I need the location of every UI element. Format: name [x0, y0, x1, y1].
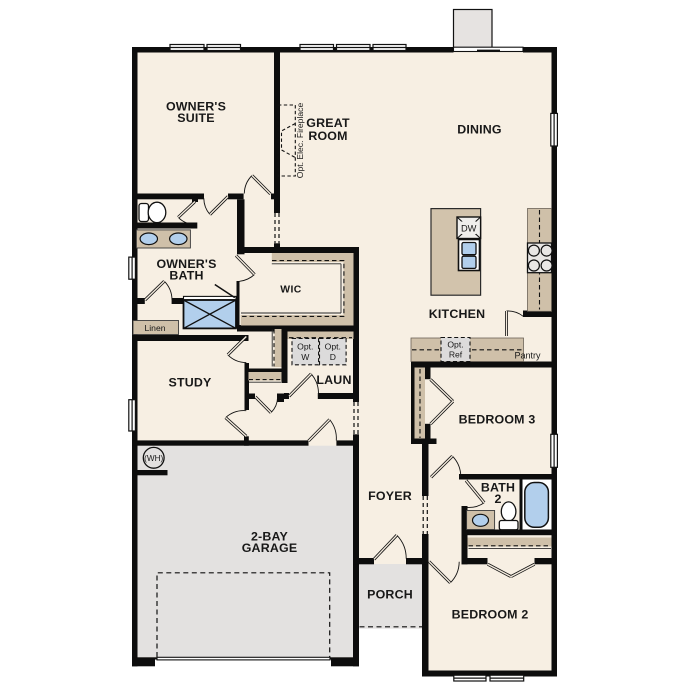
svg-text:WIC: WIC: [280, 284, 301, 295]
svg-text:BEDROOM 3: BEDROOM 3: [459, 413, 536, 427]
svg-text:Opt.: Opt.: [297, 342, 313, 352]
svg-text:W: W: [301, 352, 310, 362]
svg-text:BATH: BATH: [169, 269, 203, 283]
svg-text:GREAT: GREAT: [306, 116, 350, 130]
svg-text:D: D: [330, 352, 336, 362]
svg-text:2: 2: [494, 492, 501, 506]
svg-text:Pantry: Pantry: [514, 351, 541, 361]
svg-text:PORCH: PORCH: [367, 588, 413, 602]
svg-text:BEDROOM 2: BEDROOM 2: [452, 608, 529, 622]
svg-text:GARAGE: GARAGE: [242, 541, 298, 555]
svg-text:Opt.: Opt.: [325, 342, 341, 352]
svg-text:Ref: Ref: [449, 350, 463, 360]
svg-text:SUITE: SUITE: [177, 111, 215, 125]
svg-text:(WH): (WH): [144, 454, 163, 463]
svg-text:Linen: Linen: [144, 323, 165, 333]
svg-text:DINING: DINING: [457, 123, 502, 137]
svg-text:DW: DW: [461, 223, 477, 233]
svg-text:FOYER: FOYER: [368, 489, 412, 503]
svg-text:Opt. Elec. Fireplace: Opt. Elec. Fireplace: [295, 103, 305, 179]
svg-text:STUDY: STUDY: [169, 376, 213, 390]
svg-text:Opt.: Opt.: [447, 339, 463, 349]
svg-text:KITCHEN: KITCHEN: [429, 307, 485, 321]
svg-text:LAUN: LAUN: [316, 373, 351, 387]
svg-text:ROOM: ROOM: [308, 129, 347, 143]
